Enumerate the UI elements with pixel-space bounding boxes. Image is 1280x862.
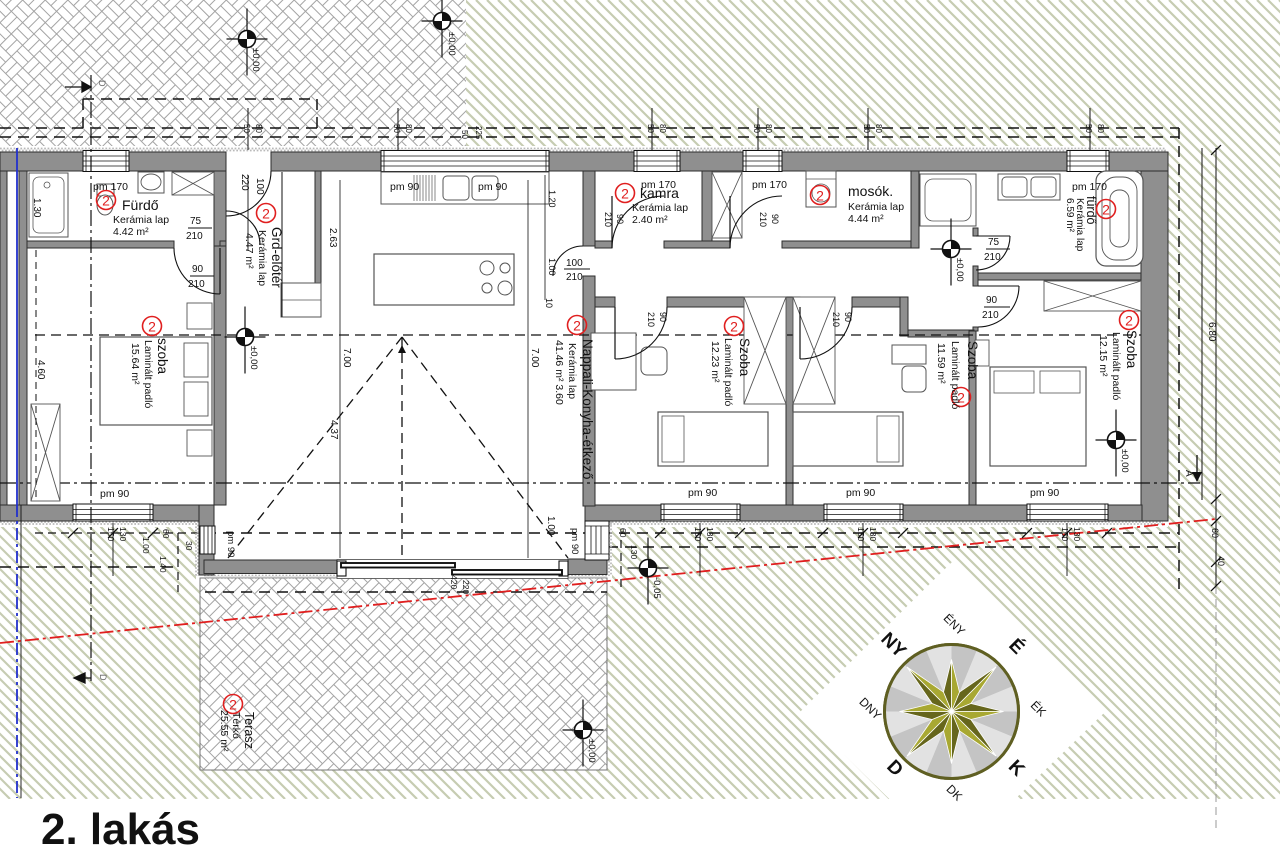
svg-text:mosók.: mosók. (848, 183, 893, 199)
svg-text:50: 50 (646, 124, 655, 133)
svg-text:7.00: 7.00 (341, 348, 352, 368)
svg-text:60: 60 (1210, 528, 1220, 538)
svg-text:4.44 m²: 4.44 m² (848, 213, 884, 225)
svg-text:130: 130 (629, 545, 639, 559)
svg-text:90: 90 (770, 214, 780, 224)
svg-text:Szoba: Szoba (965, 341, 980, 380)
svg-text:25.55 m²: 25.55 m² (218, 710, 230, 752)
svg-text:4.60: 4.60 (35, 360, 46, 380)
svg-text:pm 170: pm 170 (752, 179, 787, 191)
svg-text:Térkő: Térkő (230, 712, 242, 739)
svg-text:2. lakás: 2. lakás (41, 805, 200, 854)
svg-text:90: 90 (192, 264, 204, 275)
svg-text:pm 170: pm 170 (1072, 181, 1107, 193)
svg-text:D: D (98, 674, 108, 681)
svg-text:50: 50 (1084, 124, 1093, 133)
svg-text:4.37: 4.37 (328, 420, 339, 440)
svg-text:pm 90: pm 90 (100, 488, 129, 500)
svg-text:12.23 m²: 12.23 m² (709, 341, 721, 383)
svg-text:2: 2 (148, 319, 156, 335)
svg-text:50: 50 (752, 124, 761, 133)
svg-text:210: 210 (982, 310, 999, 321)
svg-text:Grd-előtér: Grd-előtér (269, 227, 284, 288)
svg-text:50: 50 (392, 124, 401, 133)
svg-text:50: 50 (460, 130, 469, 139)
svg-text:Kerámia lap: Kerámia lap (632, 202, 688, 214)
svg-text:±0,00: ±0,00 (446, 32, 457, 56)
svg-text:210: 210 (831, 312, 841, 327)
svg-text:75: 75 (190, 216, 202, 227)
svg-text:±0,00: ±0,00 (1119, 449, 1130, 473)
svg-text:90: 90 (658, 312, 668, 322)
svg-text:-0,05: -0,05 (651, 577, 662, 599)
svg-text:pm 90: pm 90 (846, 487, 875, 499)
svg-text:15.64 m²: 15.64 m² (129, 343, 141, 385)
svg-text:Szoba: Szoba (1124, 330, 1139, 369)
svg-text:pm 90: pm 90 (478, 181, 507, 193)
svg-text:130: 130 (705, 527, 715, 541)
svg-text:D: D (97, 80, 107, 87)
svg-text:90: 90 (986, 295, 998, 306)
svg-text:40: 40 (1216, 556, 1226, 566)
svg-text:210: 210 (186, 231, 203, 242)
svg-text:130: 130 (118, 527, 128, 541)
svg-text:Kerámia lap: Kerámia lap (113, 214, 169, 226)
svg-text:1.00: 1.00 (547, 258, 557, 276)
svg-text:2: 2 (816, 188, 824, 204)
svg-text:11.59 m²: 11.59 m² (935, 343, 947, 384)
svg-text:210: 210 (758, 212, 768, 227)
svg-text:12.15 m²: 12.15 m² (1097, 335, 1109, 377)
svg-text:80: 80 (658, 124, 667, 133)
svg-text:41.46 m² 3.60: 41.46 m² 3.60 (553, 340, 565, 405)
svg-text:Kerámia lap: Kerámia lap (256, 230, 268, 286)
svg-text:Kerámia lap: Kerámia lap (848, 201, 904, 213)
svg-text:60: 60 (618, 528, 628, 538)
svg-text:2: 2 (262, 206, 270, 222)
svg-text:30: 30 (184, 541, 194, 551)
svg-text:210: 210 (188, 279, 205, 290)
svg-text:±0,00: ±0,00 (250, 48, 261, 72)
svg-text:pm 90: pm 90 (225, 531, 236, 557)
svg-text:Kerámia lap: Kerámia lap (566, 343, 578, 399)
svg-text:130: 130 (1072, 527, 1082, 541)
svg-text:2: 2 (573, 318, 581, 334)
svg-text:2.63: 2.63 (327, 228, 338, 248)
svg-text:50: 50 (862, 124, 871, 133)
svg-text:90: 90 (615, 214, 625, 224)
svg-text:50: 50 (242, 124, 251, 133)
svg-text:4.42 m²: 4.42 m² (113, 226, 149, 238)
svg-text:210: 210 (984, 252, 1001, 263)
svg-text:±0,00: ±0,00 (586, 739, 597, 763)
svg-text:130: 130 (868, 527, 878, 541)
svg-text:szoba: szoba (155, 338, 170, 375)
svg-text:Szoba: Szoba (737, 338, 752, 377)
svg-text:80: 80 (254, 124, 263, 133)
svg-text:2: 2 (1102, 202, 1110, 218)
svg-text:1.40: 1.40 (158, 556, 168, 573)
svg-text:1.00: 1.00 (545, 516, 556, 536)
svg-text:6.80: 6.80 (1206, 322, 1217, 342)
svg-text:pm 90: pm 90 (569, 528, 580, 554)
svg-text:75: 75 (988, 237, 1000, 248)
svg-text:80: 80 (404, 124, 413, 133)
svg-text:2.40 m²: 2.40 m² (632, 214, 668, 226)
svg-text:210: 210 (646, 312, 656, 327)
svg-text:pm 90: pm 90 (688, 487, 717, 499)
svg-text:±0,00: ±0,00 (248, 346, 259, 370)
svg-text:pm 90: pm 90 (1030, 487, 1059, 499)
svg-text:Laminált padló: Laminált padló (142, 340, 154, 408)
svg-text:1.00: 1.00 (141, 537, 151, 554)
svg-text:1.20: 1.20 (547, 190, 557, 208)
svg-text:pm 90: pm 90 (390, 181, 419, 193)
svg-text:kamra: kamra (640, 185, 679, 201)
svg-text:Terasz: Terasz (242, 712, 256, 749)
svg-text:Laminált padló: Laminált padló (722, 338, 734, 406)
svg-text:100: 100 (254, 178, 265, 195)
svg-text:100: 100 (566, 258, 583, 269)
svg-text:±0,00: ±0,00 (954, 258, 965, 282)
svg-text:60: 60 (161, 529, 171, 539)
svg-text:1.30: 1.30 (31, 198, 42, 218)
svg-text:2: 2 (730, 319, 738, 335)
svg-text:Laminált padló: Laminált padló (1110, 332, 1122, 400)
svg-text:fürdő: fürdő (1084, 196, 1098, 225)
svg-text:6.59 m²: 6.59 m² (1064, 198, 1075, 233)
svg-text:Nappali-Konyha-étkező: Nappali-Konyha-étkező (580, 339, 595, 479)
svg-text:4.47 m²: 4.47 m² (243, 233, 255, 269)
svg-text:80: 80 (874, 124, 883, 133)
svg-text:80: 80 (764, 124, 773, 133)
svg-text:2: 2 (621, 186, 629, 202)
svg-text:225: 225 (474, 126, 483, 140)
svg-text:Fürdő: Fürdő (122, 197, 159, 213)
svg-text:210: 210 (603, 212, 613, 227)
svg-text:420: 420 (449, 575, 459, 589)
svg-text:90: 90 (843, 312, 853, 322)
svg-text:10: 10 (544, 298, 554, 308)
svg-text:Laminált padló: Laminált padló (949, 341, 961, 409)
svg-text:2: 2 (1125, 313, 1133, 329)
svg-text:A: A (1183, 470, 1194, 477)
svg-text:7.00: 7.00 (529, 348, 540, 368)
svg-text:2: 2 (102, 193, 110, 209)
svg-text:210: 210 (566, 272, 583, 283)
svg-text:80: 80 (1096, 124, 1105, 133)
svg-text:220: 220 (461, 580, 471, 594)
